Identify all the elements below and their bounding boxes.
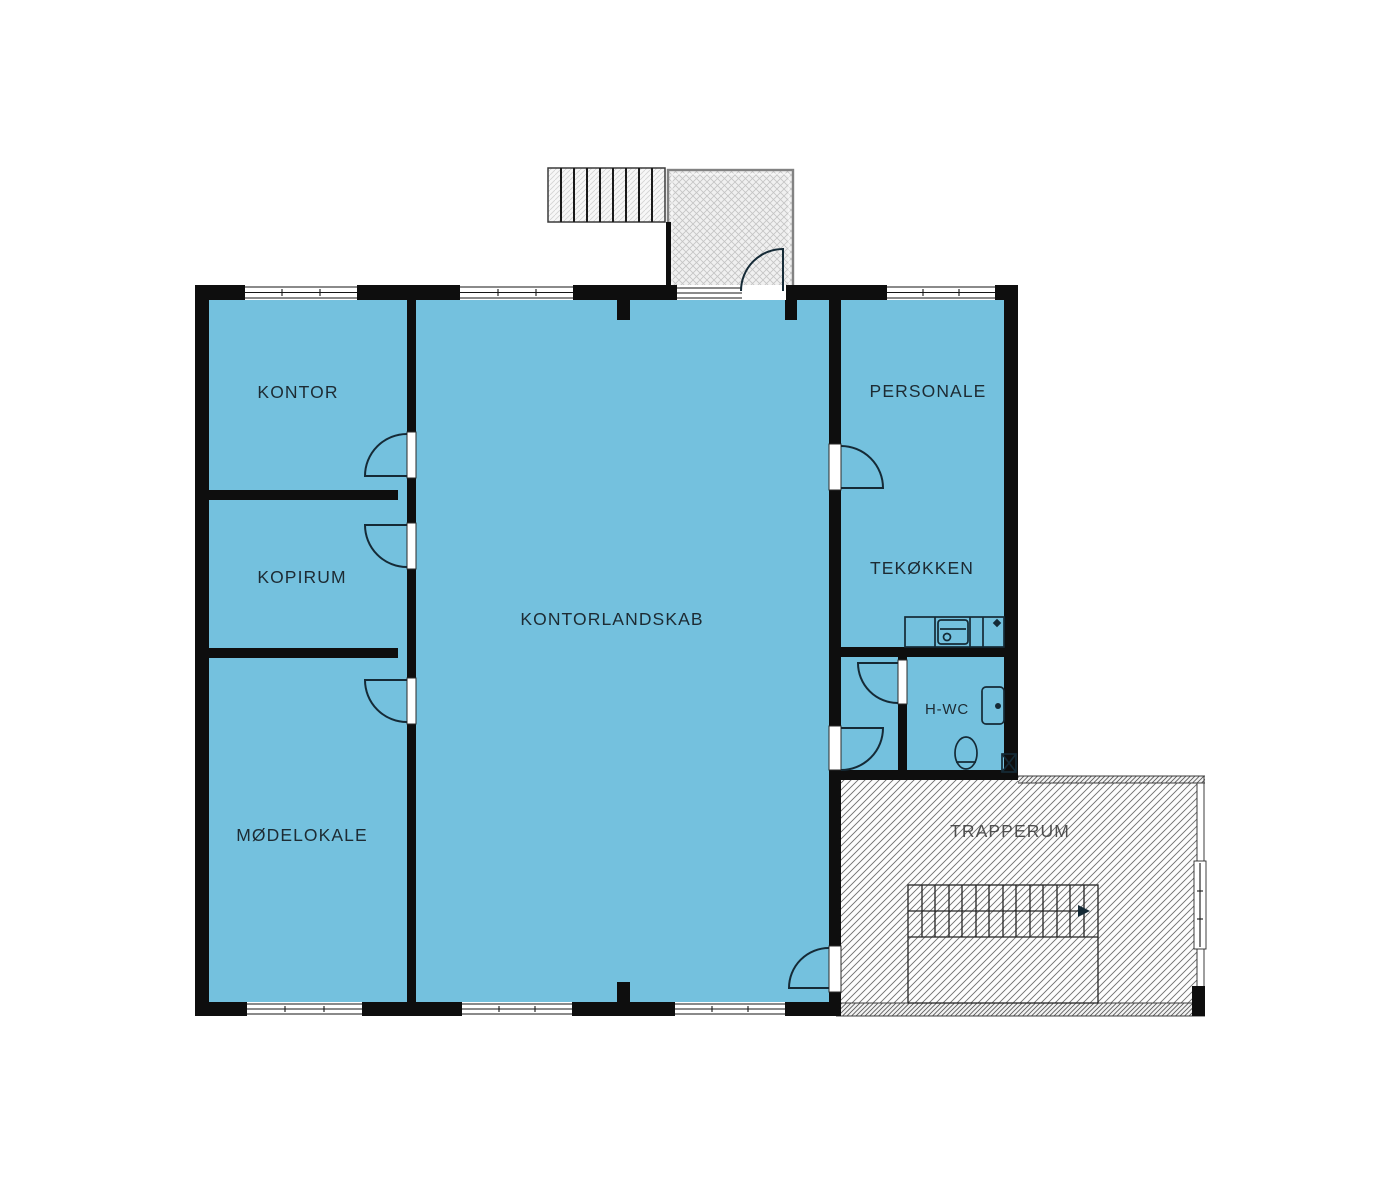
floor-plan-drawing: KONTOR KOPIRUM MØDELOKALE KONTORLANDSKAB… xyxy=(0,0,1400,1204)
wall-kopirum-moedelokale xyxy=(209,648,398,658)
entrance-porch xyxy=(666,170,793,291)
wall-stub-entrance xyxy=(785,298,797,320)
room-label-kontor: KONTOR xyxy=(257,382,338,402)
wall-exterior-left xyxy=(195,285,209,1016)
entrance-door-opening xyxy=(742,285,786,300)
window xyxy=(245,285,357,300)
room-label-kontorlandskab: KONTORLANDSKAB xyxy=(520,609,703,629)
floor-plan-page: KONTOR KOPIRUM MØDELOKALE KONTORLANDSKAB… xyxy=(0,0,1400,1204)
porch-side-wall xyxy=(666,222,671,291)
window xyxy=(462,1002,572,1016)
wall-stub-bottom xyxy=(617,982,630,1002)
room-label-personale: PERSONALE xyxy=(870,381,987,401)
wall-tekoekken-bottom xyxy=(841,647,1004,657)
room-label-kopirum: KOPIRUM xyxy=(257,567,346,587)
room-label-moedelokale: MØDELOKALE xyxy=(236,825,368,845)
wall-right-rooms xyxy=(829,298,841,1002)
window xyxy=(460,285,573,300)
exterior-stair xyxy=(548,168,665,222)
wall-kontor-kopirum xyxy=(209,490,398,500)
room-label-hwc: H-WC xyxy=(925,701,969,718)
wall-stub-top xyxy=(617,298,630,320)
entrance-sidelight-window xyxy=(677,285,742,300)
wall-hwc-trapperum xyxy=(829,770,1018,780)
window xyxy=(247,1002,362,1016)
trapperum-window xyxy=(1194,861,1206,949)
window xyxy=(675,1002,785,1016)
wall-left-rooms xyxy=(407,298,416,1002)
room-trapperum xyxy=(836,776,1206,1016)
room-label-tekoekken: TEKØKKEN xyxy=(870,558,974,578)
window xyxy=(887,285,995,300)
room-label-trapperum: TRAPPERUM xyxy=(950,821,1070,841)
wall-exterior-right xyxy=(1004,285,1018,780)
